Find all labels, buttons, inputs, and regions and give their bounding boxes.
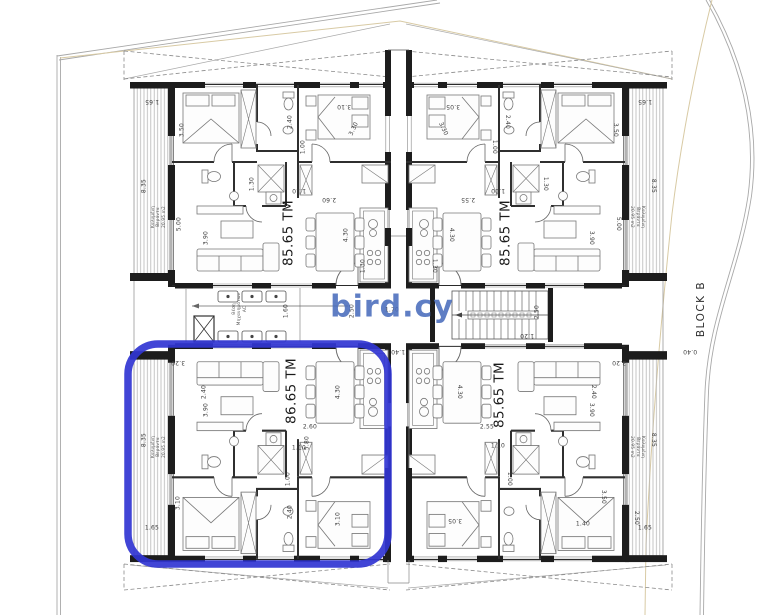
watermark: bird.cy — [330, 290, 454, 325]
unit-top-right — [406, 82, 667, 289]
unit-bottom-left — [130, 343, 391, 562]
elevator-shaft — [194, 316, 214, 342]
ac-units — [218, 291, 286, 342]
unit-top-left — [130, 82, 391, 289]
floor-plan-page: 85.65 TM85.65 TM86.65 TM85.65 TMΚαλυμένη… — [0, 0, 780, 615]
block-b-label: BLOCK B — [695, 281, 707, 337]
unit-bottom-right — [406, 343, 667, 562]
